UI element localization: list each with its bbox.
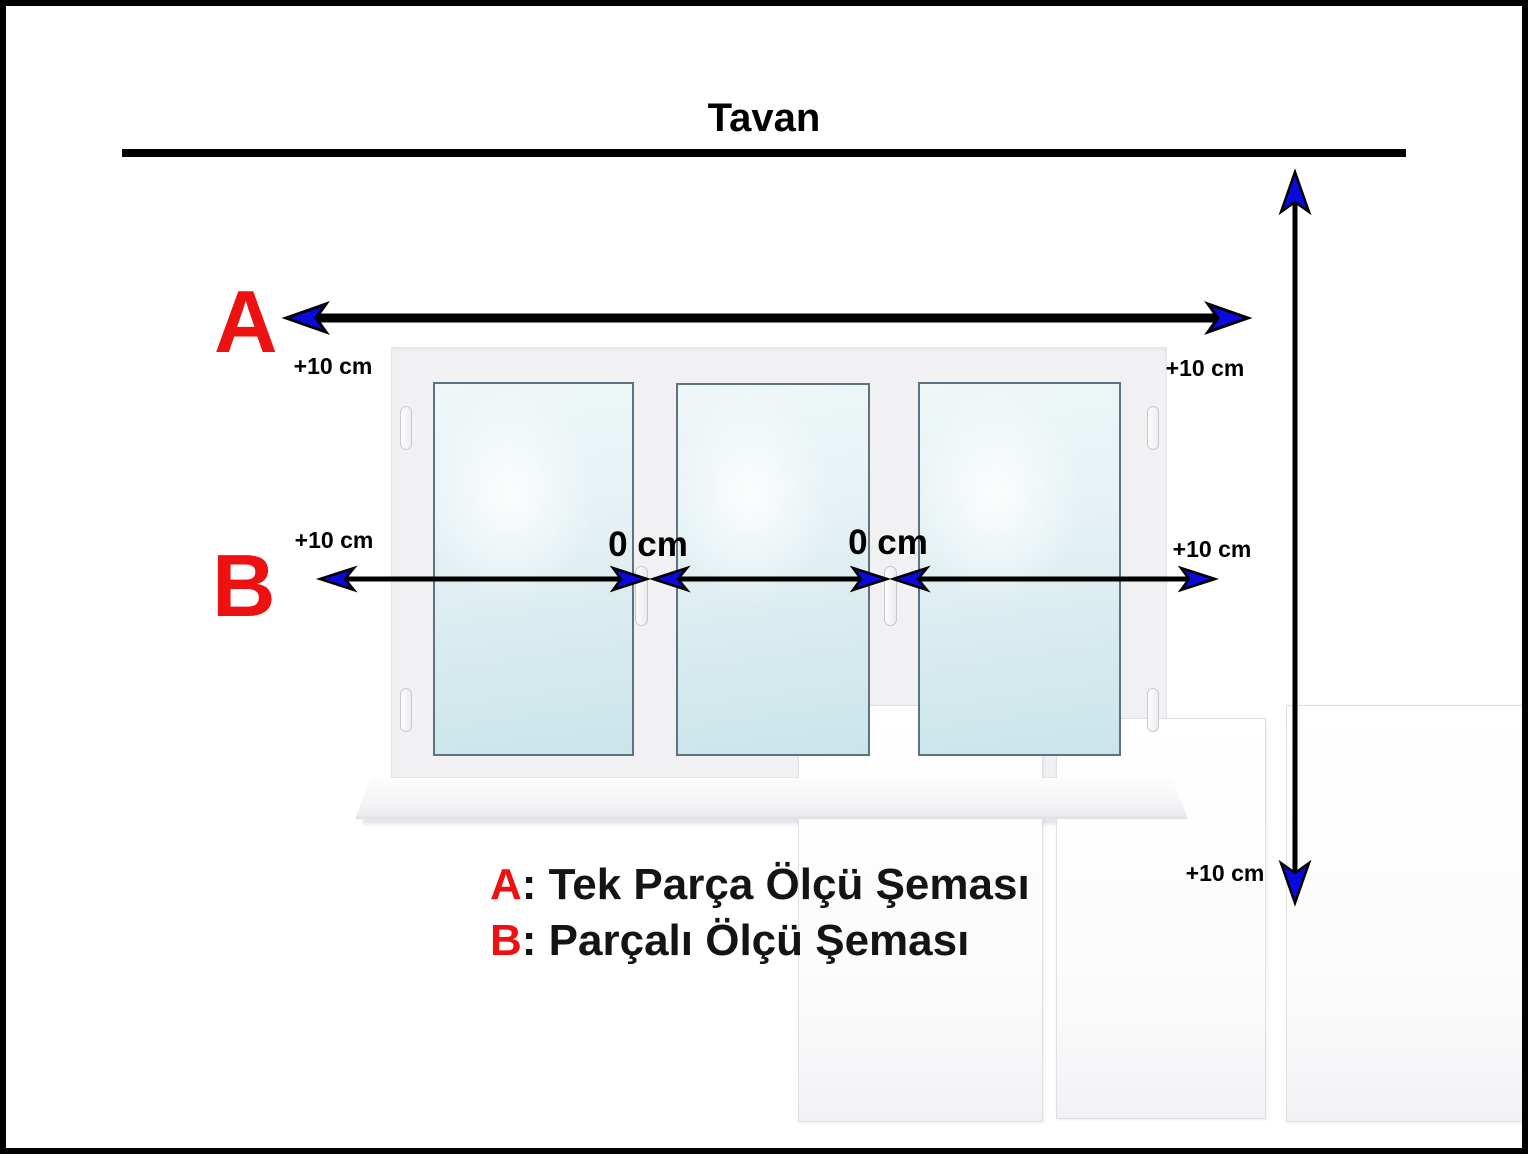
b-segment-3-arrow bbox=[893, 568, 1215, 590]
arrows-overlay bbox=[0, 0, 1528, 1154]
a-width-arrow bbox=[286, 304, 1248, 332]
measurement-diagram: Tavan bbox=[0, 0, 1528, 1154]
height-arrow bbox=[1281, 172, 1309, 903]
b-segment-2-arrow bbox=[653, 568, 887, 590]
b-segment-1-arrow bbox=[320, 568, 647, 590]
